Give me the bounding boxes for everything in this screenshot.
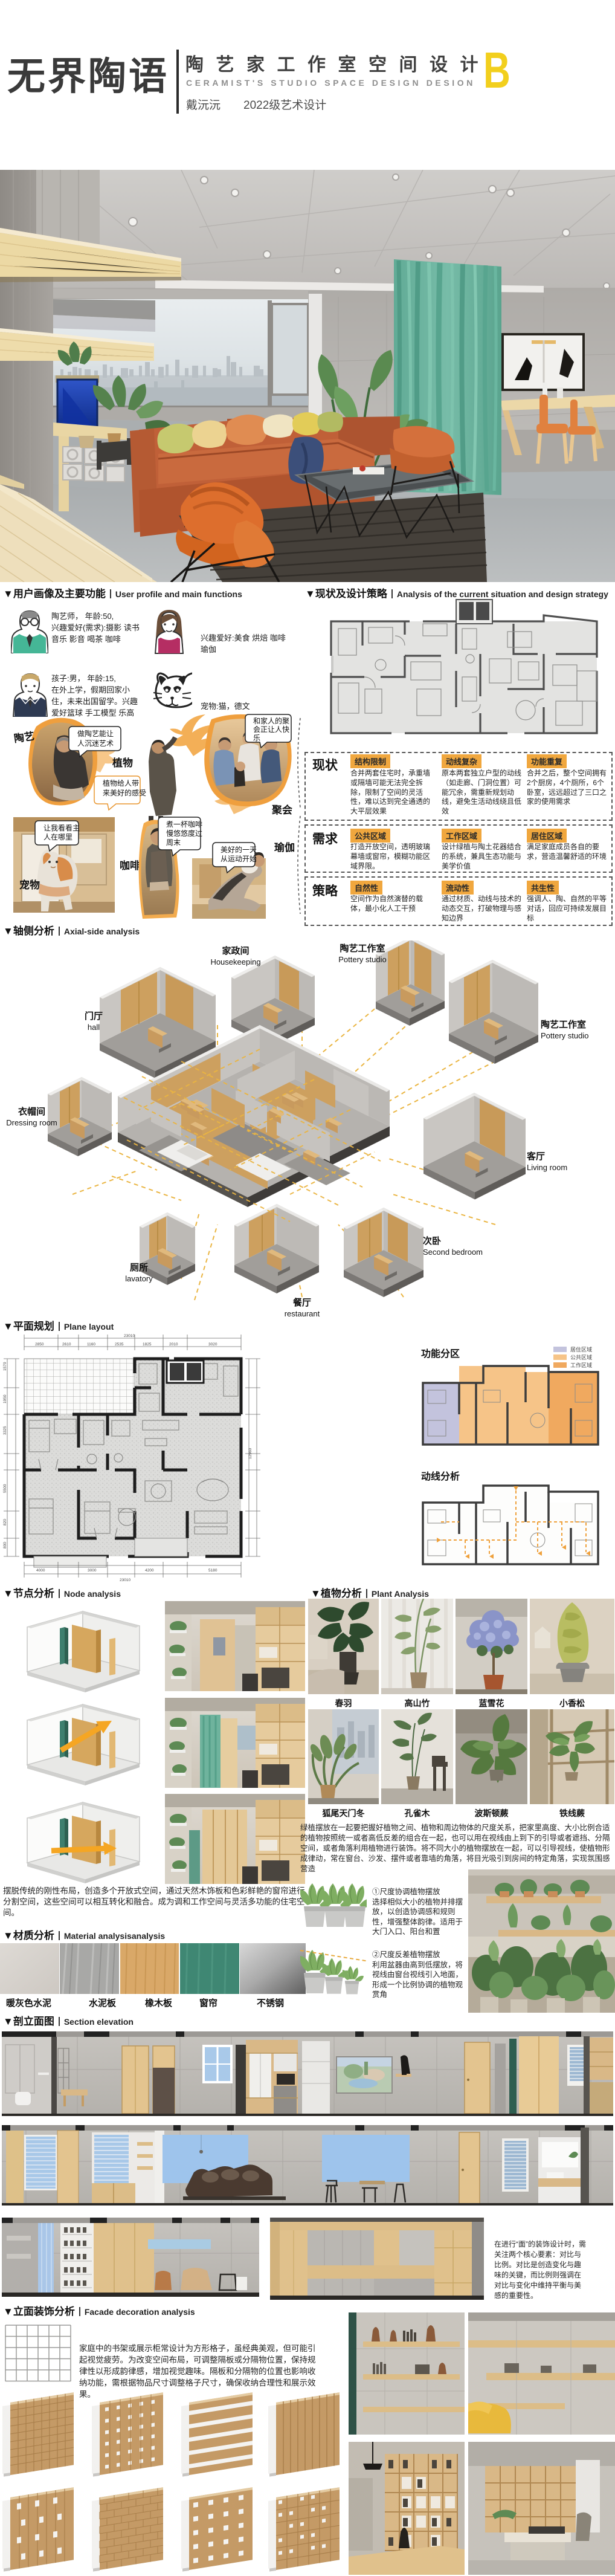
svg-text:1570: 1570	[3, 1362, 7, 1371]
svg-text:植物: 植物	[112, 757, 133, 769]
svg-text:23010: 23010	[124, 1334, 135, 1338]
svg-text:会正让人快: 会正让人快	[253, 725, 289, 734]
svg-text:聚会: 聚会	[271, 804, 292, 816]
svg-text:2010: 2010	[169, 1342, 178, 1347]
svg-text:工作区域: 工作区域	[570, 1362, 592, 1368]
svg-text:4200: 4200	[145, 1568, 154, 1573]
svg-text:1950: 1950	[3, 1394, 7, 1403]
svg-text:植物给人带: 植物给人带	[103, 778, 139, 788]
svg-text:23010: 23010	[120, 1578, 130, 1582]
svg-text:1825: 1825	[143, 1342, 152, 1347]
svg-text:乐: 乐	[253, 734, 260, 742]
svg-text:2535: 2535	[115, 1342, 124, 1347]
svg-text:2610: 2610	[62, 1342, 71, 1347]
svg-text:从运动开始: 从运动开始	[221, 855, 257, 863]
svg-text:周末: 周末	[166, 838, 181, 847]
svg-text:12960: 12960	[248, 1448, 253, 1459]
svg-text:宠物: 宠物	[19, 879, 40, 891]
svg-text:咖啡: 咖啡	[120, 859, 140, 872]
svg-text:人在哪里: 人在哪里	[43, 833, 72, 841]
svg-text:3020: 3020	[208, 1342, 217, 1347]
svg-text:煮一杯咖啡: 煮一杯咖啡	[166, 820, 202, 829]
svg-text:820: 820	[3, 1519, 7, 1526]
svg-text:居住区域: 居住区域	[570, 1346, 592, 1353]
svg-text:美好的一天: 美好的一天	[221, 845, 257, 854]
svg-text:3325: 3325	[3, 1426, 7, 1435]
svg-text:让我看看主: 让我看看主	[43, 824, 80, 832]
svg-text:来美好的感受: 来美好的感受	[103, 788, 146, 797]
svg-text:功能分区: 功能分区	[421, 1348, 460, 1359]
svg-text:5500: 5500	[3, 1484, 7, 1493]
svg-text:和家人的聚: 和家人的聚	[253, 716, 289, 725]
svg-text:4000: 4000	[36, 1568, 45, 1573]
svg-text:动线分析: 动线分析	[421, 1471, 460, 1482]
svg-text:3000: 3000	[88, 1568, 97, 1573]
svg-text:800: 800	[3, 1542, 7, 1549]
svg-text:人沉迷艺术: 人沉迷艺术	[77, 739, 114, 748]
svg-text:公共区域: 公共区域	[570, 1354, 592, 1361]
svg-text:2850: 2850	[35, 1342, 44, 1347]
svg-text:瑜伽: 瑜伽	[274, 841, 295, 853]
svg-text:做陶艺能让: 做陶艺能让	[77, 729, 114, 738]
svg-text:5180: 5180	[208, 1568, 217, 1573]
svg-text:1160: 1160	[87, 1342, 95, 1347]
svg-text:慢悠悠度过: 慢悠悠度过	[166, 829, 202, 838]
